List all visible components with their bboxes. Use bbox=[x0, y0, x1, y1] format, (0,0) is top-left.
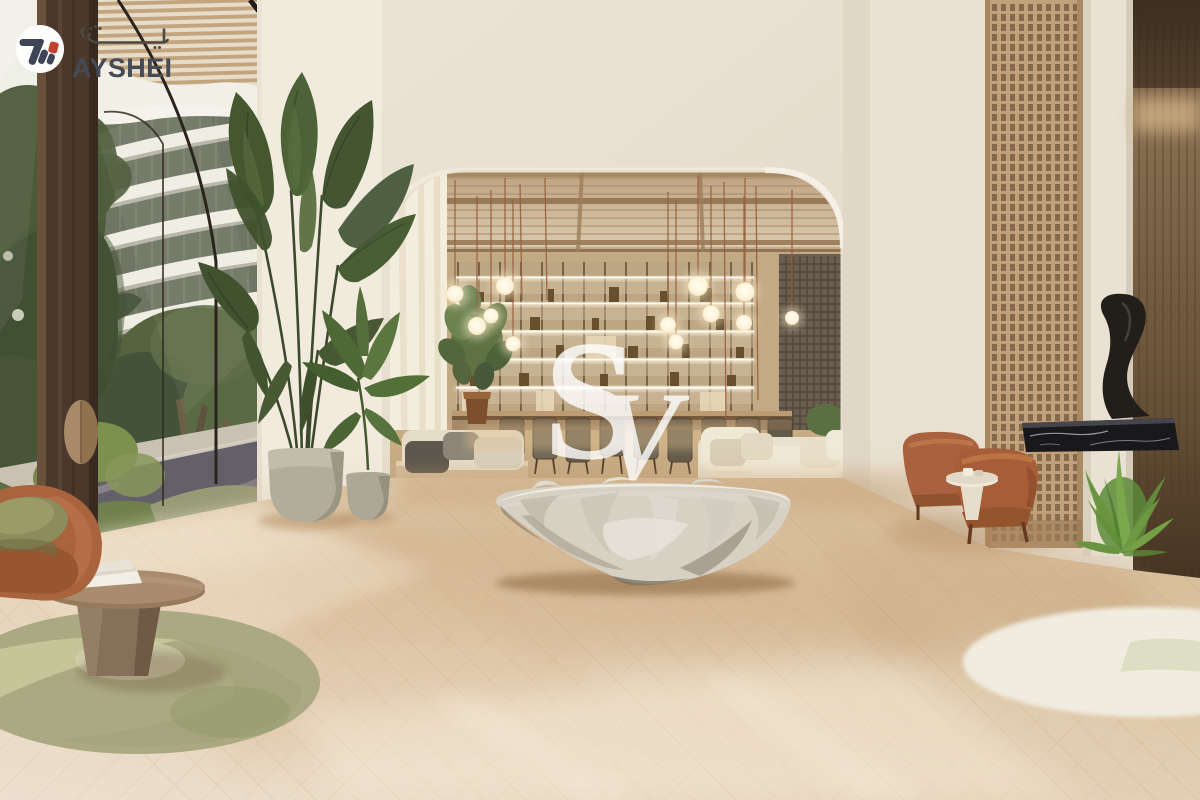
svg-text:V: V bbox=[597, 367, 690, 506]
svg-text:AYSHEI: AYSHEI bbox=[72, 53, 172, 83]
